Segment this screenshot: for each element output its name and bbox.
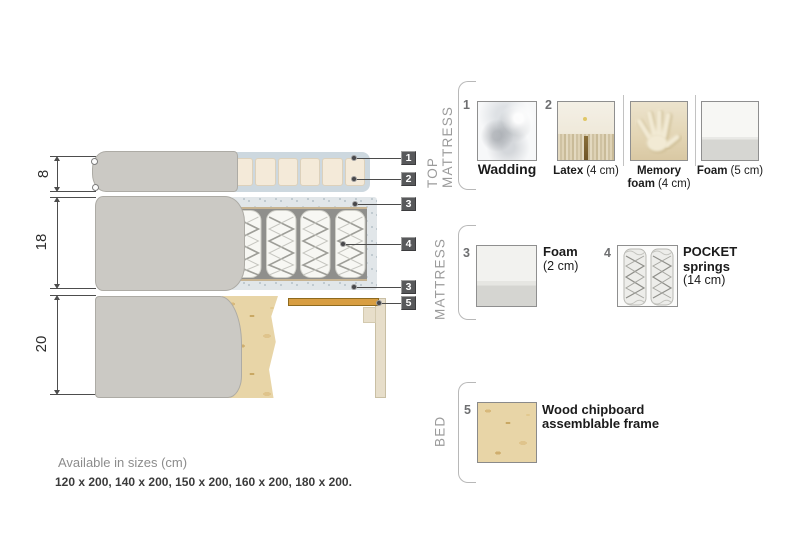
bed-side-leg xyxy=(375,298,386,398)
foam5-caption: Foam(5 cm) xyxy=(687,165,773,178)
top-mattress-fabric-cover xyxy=(92,151,238,192)
legend-divider xyxy=(623,95,624,166)
latex-dot xyxy=(583,117,587,121)
pocket-springs-caption: POCKET springs (14 cm) xyxy=(683,245,737,288)
callout-3: 3 xyxy=(401,197,416,211)
dim18-label: 18 xyxy=(33,229,49,255)
callout-1: 1 xyxy=(401,151,416,165)
bed-caption: Wood chipboard assemblable frame xyxy=(542,403,659,430)
foam2-name: Foam xyxy=(543,244,578,259)
callout-dot-3 xyxy=(352,201,358,207)
section-bracket-mattress xyxy=(458,225,476,320)
foam-block xyxy=(278,158,298,186)
legend-item-number: 1 xyxy=(463,98,470,112)
legend-item-number: 2 xyxy=(545,98,552,112)
callout-line-5 xyxy=(379,303,401,304)
mattress-button xyxy=(92,184,99,191)
foam-block xyxy=(322,158,342,186)
chipboard-photo xyxy=(477,402,537,463)
memory-size: (4 cm) xyxy=(658,178,691,190)
pocket-size: (14 cm) xyxy=(683,273,725,287)
mattress-button xyxy=(91,158,98,165)
callout-4: 4 xyxy=(401,237,416,251)
latex-photo xyxy=(557,101,615,161)
callout-2: 2 xyxy=(401,172,416,186)
bed-frame-step xyxy=(363,307,376,323)
legend-item-number: 5 xyxy=(464,403,471,417)
callout-line-4 xyxy=(343,244,401,245)
legend-divider xyxy=(695,95,696,166)
callout-dot-1 xyxy=(351,155,357,161)
dim18-arrow-down-icon xyxy=(54,284,60,289)
mattress-fabric-cover xyxy=(95,196,245,291)
sizes-list: 120 x 200, 140 x 200, 150 x 200, 160 x 2… xyxy=(55,475,352,489)
foam2-size: (2 cm) xyxy=(543,259,578,273)
dim18-arrow-up-icon xyxy=(54,197,60,202)
section-bracket-bed xyxy=(458,382,476,483)
dim8-line xyxy=(57,159,58,189)
dim8-label: 8 xyxy=(35,161,51,187)
spring-tape-bottom xyxy=(230,279,367,281)
mattress-construction-infographic: 8 18 20 xyxy=(0,0,800,533)
latex-name: Latex xyxy=(553,165,583,177)
hand-imprint-icon xyxy=(631,102,688,161)
callout-dot-4 xyxy=(340,241,346,247)
memory-foam-photo xyxy=(630,101,688,161)
callout-5: 5 xyxy=(401,296,416,310)
foam5-photo xyxy=(701,101,759,161)
dim18-line xyxy=(57,200,58,284)
dim8-arrow-down-icon xyxy=(54,187,60,192)
section-title-bed: BED xyxy=(430,402,450,460)
dim20-line xyxy=(57,298,58,390)
pocket-spring xyxy=(265,209,298,279)
dim20-arrow-down-icon xyxy=(54,390,60,395)
foam5-size: (5 cm) xyxy=(731,165,764,177)
foam2-caption: Foam (2 cm) xyxy=(543,245,578,273)
bed-wood-slat xyxy=(288,298,379,306)
pocket-spring xyxy=(299,209,332,279)
callout-dot-2 xyxy=(351,176,357,182)
foam5-name: Foam xyxy=(697,165,728,177)
foam2-photo xyxy=(476,245,537,307)
pocket-springs-icon xyxy=(618,246,678,307)
bed-fabric-cover xyxy=(95,296,242,398)
latex-size: (4 cm) xyxy=(586,165,619,177)
callout-line-2 xyxy=(354,179,401,180)
sizes-title: Available in sizes (cm) xyxy=(58,455,187,470)
memory-name-line2: foam xyxy=(627,178,654,190)
foam-block xyxy=(255,158,275,186)
wadding-photo xyxy=(477,101,537,161)
foam-block xyxy=(300,158,320,186)
bed-name-line2: assemblable frame xyxy=(542,416,659,431)
pocket-name-line2: springs xyxy=(683,259,730,274)
callout-line-3b xyxy=(354,287,401,288)
callout-3b: 3 xyxy=(401,280,416,294)
memory-name-line1: Memory xyxy=(637,165,681,177)
latex-streak xyxy=(584,136,588,160)
dim8-arrow-up-icon xyxy=(54,156,60,161)
top-mattress-foam-blocks xyxy=(233,158,365,186)
wadding-caption: Wadding xyxy=(465,163,549,176)
dim20-label: 20 xyxy=(33,331,49,357)
callout-line-3 xyxy=(355,204,401,205)
legend-item-number: 3 xyxy=(463,246,470,260)
callout-dot-3b xyxy=(351,284,357,290)
section-title-mattress: MATTRESS xyxy=(430,234,450,324)
dim20-arrow-up-icon xyxy=(54,295,60,300)
section-title-top-mattress: TOP MATTRESS xyxy=(430,84,450,188)
callout-line-1 xyxy=(354,158,401,159)
legend-item-number: 4 xyxy=(604,246,611,260)
pocket-springs-photo xyxy=(617,245,678,307)
pocket-name-line1: POCKET xyxy=(683,244,737,259)
callout-dot-5 xyxy=(376,300,382,306)
